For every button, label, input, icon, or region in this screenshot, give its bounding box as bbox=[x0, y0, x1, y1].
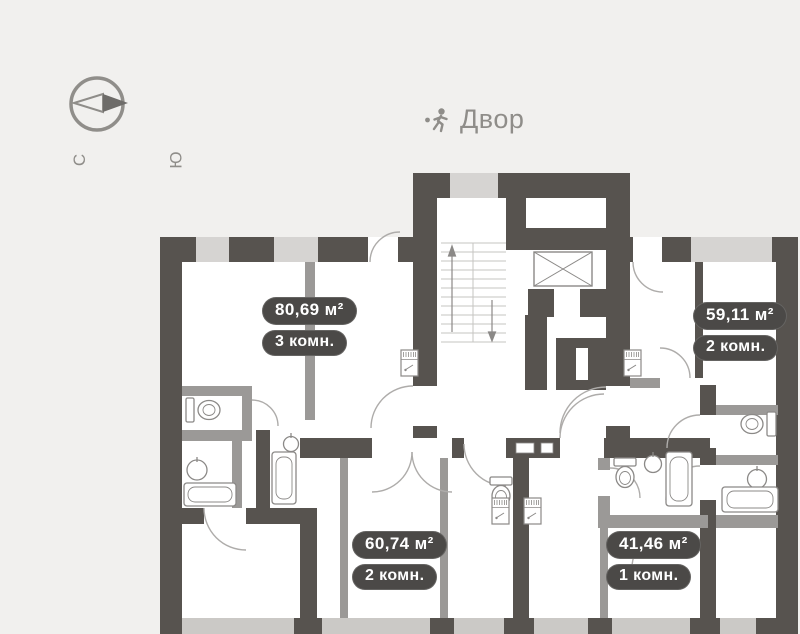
shaft-slot bbox=[576, 348, 588, 380]
electrical-panel-icon bbox=[624, 350, 641, 376]
apartment-badge-2room-right[interactable]: 59,11 м² 2 комн. bbox=[693, 302, 787, 361]
apartment-rooms: 3 комн. bbox=[262, 330, 347, 356]
apartment-area: 59,11 м² bbox=[693, 302, 787, 330]
apartment-area: 60,74 м² bbox=[352, 531, 447, 559]
apartment-rooms: 1 комн. bbox=[606, 564, 691, 590]
bathtub-icon bbox=[722, 487, 778, 512]
compass-north-label: С bbox=[70, 154, 90, 166]
toilet-icon bbox=[186, 398, 220, 422]
apartment-rooms: 2 комн. bbox=[352, 564, 437, 590]
courtyard-text: Двор bbox=[460, 104, 524, 135]
electrical-panel-icon bbox=[524, 498, 541, 524]
door-opening bbox=[633, 237, 662, 262]
compass-icon bbox=[30, 55, 170, 155]
toilet-icon bbox=[741, 412, 776, 436]
courtyard-label: Двор bbox=[424, 104, 524, 135]
window bbox=[196, 237, 229, 262]
window bbox=[274, 237, 318, 262]
compass: С Ю bbox=[30, 55, 170, 155]
floor-plan-page: С Ю Двор 80,69 м² 3 комн. 59,11 м² 2 ком… bbox=[0, 0, 800, 634]
bathtub-icon bbox=[184, 483, 236, 506]
compass-south-label: Ю bbox=[167, 151, 187, 168]
window bbox=[450, 173, 498, 198]
apartment-badge-3room[interactable]: 80,69 м² 3 комн. bbox=[262, 297, 357, 356]
window bbox=[691, 237, 772, 262]
vent-slot bbox=[541, 443, 553, 453]
electrical-panel-icon bbox=[401, 350, 418, 376]
running-person-icon bbox=[424, 105, 452, 135]
apartment-area: 80,69 м² bbox=[262, 297, 357, 325]
apartment-badge-2room-bottom[interactable]: 60,74 м² 2 комн. bbox=[352, 531, 447, 590]
electrical-panel-icon bbox=[492, 498, 509, 524]
bottom-wall bbox=[160, 618, 798, 634]
toilet-icon bbox=[614, 458, 636, 488]
bathtub-icon bbox=[666, 452, 692, 506]
apartment-rooms: 2 комн. bbox=[693, 335, 778, 361]
vent-slot bbox=[516, 443, 534, 453]
elevator-shaft-icon bbox=[534, 252, 592, 286]
apartment-badge-1room[interactable]: 41,46 м² 1 комн. bbox=[606, 531, 701, 590]
apartment-area: 41,46 м² bbox=[606, 531, 701, 559]
bathtub-icon bbox=[272, 452, 296, 504]
